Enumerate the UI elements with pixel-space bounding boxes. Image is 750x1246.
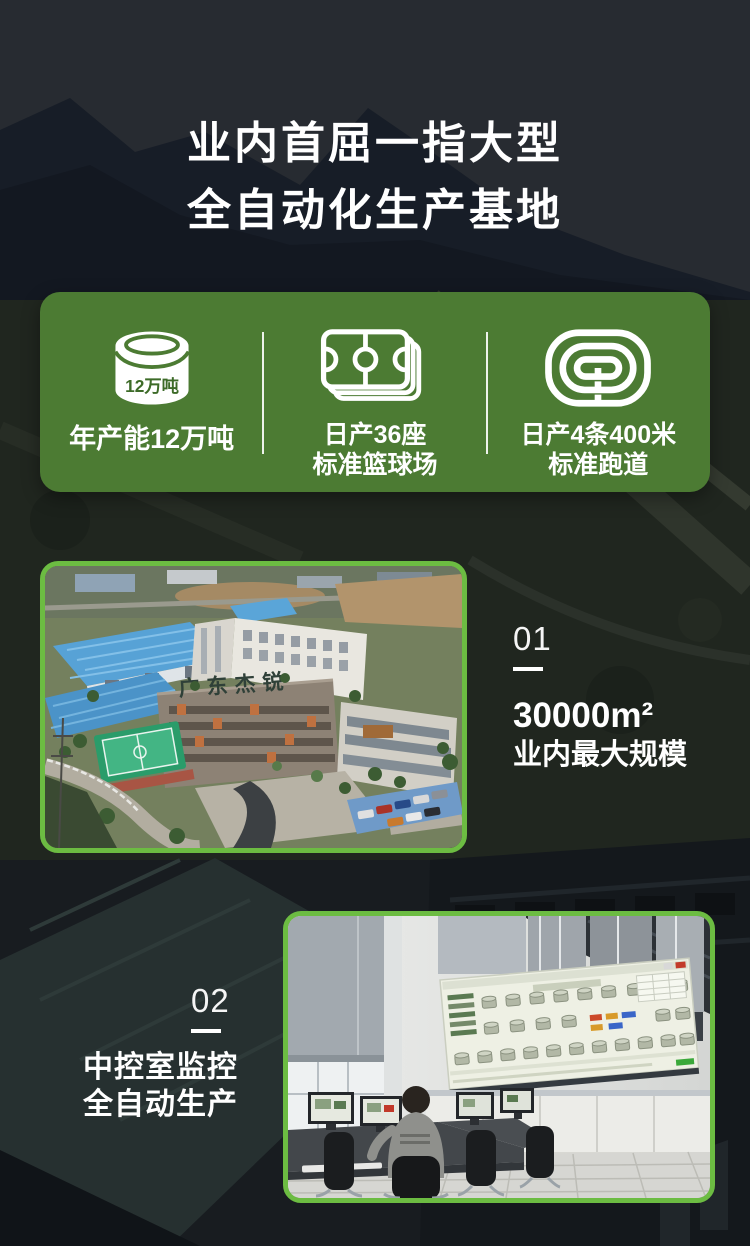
section-underline <box>513 667 543 671</box>
section-stat-scale: 业内最大规模 <box>513 737 687 773</box>
section-number: 01 <box>513 620 687 658</box>
stat-item-basketball-courts: 日产36座 标准篮球场 <box>263 292 486 492</box>
control-room-photo <box>283 911 715 1203</box>
basketball-court-icon <box>319 325 431 411</box>
title-line-1: 业内首屈一指大型 <box>0 110 750 177</box>
section-stat-area: 30000m² <box>513 697 687 735</box>
stats-card: 12万吨 年产能12万吨 日产36座 <box>40 292 710 492</box>
divider <box>262 332 264 454</box>
headquarters-building: 广东杰锐 <box>157 669 339 788</box>
running-track-icon <box>542 325 654 411</box>
page-title: 业内首屈一指大型 全自动化生产基地 <box>0 110 750 244</box>
section-underline <box>191 1029 221 1033</box>
tank-capacity-badge: 12万吨 <box>125 376 179 396</box>
stat-label: 日产4条400米 标准跑道 <box>521 420 677 480</box>
stat-label: 年产能12万吨 <box>69 424 234 454</box>
divider <box>486 332 488 454</box>
factory-aerial-photo: 广东杰锐 <box>40 561 467 853</box>
stat-item-running-tracks: 日产4条400米 标准跑道 <box>487 292 710 492</box>
stat-item-annual-capacity: 12万吨 年产能12万吨 <box>40 292 263 492</box>
factory-aerial-illustration: 广东杰锐 <box>45 566 462 848</box>
stat-label: 日产36座 标准篮球场 <box>312 420 437 480</box>
production-tank-icon: 12万吨 <box>102 325 202 411</box>
control-room-illustration <box>288 916 710 1198</box>
scada-wall-display <box>440 958 699 1095</box>
section-text-line2: 全自动生产 <box>83 1086 238 1123</box>
section-number: 02 <box>191 982 230 1020</box>
section-02-number-block: 02 <box>191 982 230 1033</box>
section-02-caption: 中控室监控 全自动生产 <box>83 1049 238 1123</box>
title-line-2: 全自动化生产基地 <box>0 177 750 244</box>
promo-page: 业内首屈一指大型 全自动化生产基地 12万吨 年产能12万吨 <box>0 0 750 1246</box>
section-text-line1: 中控室监控 <box>83 1049 238 1086</box>
section-01-caption: 01 30000m² 业内最大规模 <box>513 620 687 773</box>
